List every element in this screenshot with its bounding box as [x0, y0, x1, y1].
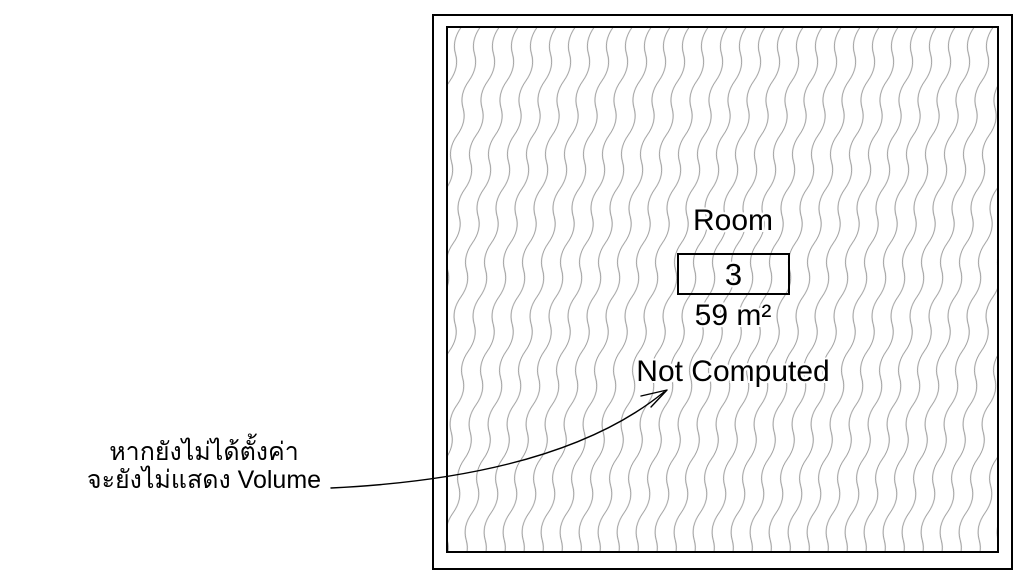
room-tag-number-box[interactable]: 3 — [677, 253, 790, 295]
room-tag-name[interactable]: Room — [633, 205, 833, 237]
thai-annotation-line2: จะยังไม่แสดง Volume — [85, 466, 323, 494]
thai-annotation[interactable]: หากยังไม่ได้ตั้งค่า จะยังไม่แสดง Volume — [85, 438, 323, 494]
cad-drawing-view: Room 3 59 m² Not Computed หากยังไม่ได้ตั… — [0, 0, 1032, 584]
room-tag-area[interactable]: 59 m² — [633, 300, 833, 332]
floor-plan-drawing — [0, 0, 1032, 584]
room-tag-number: 3 — [725, 259, 742, 290]
thai-annotation-line1: หากยังไม่ได้ตั้งค่า — [85, 438, 323, 466]
room-tag-volume[interactable]: Not Computed — [593, 356, 873, 388]
